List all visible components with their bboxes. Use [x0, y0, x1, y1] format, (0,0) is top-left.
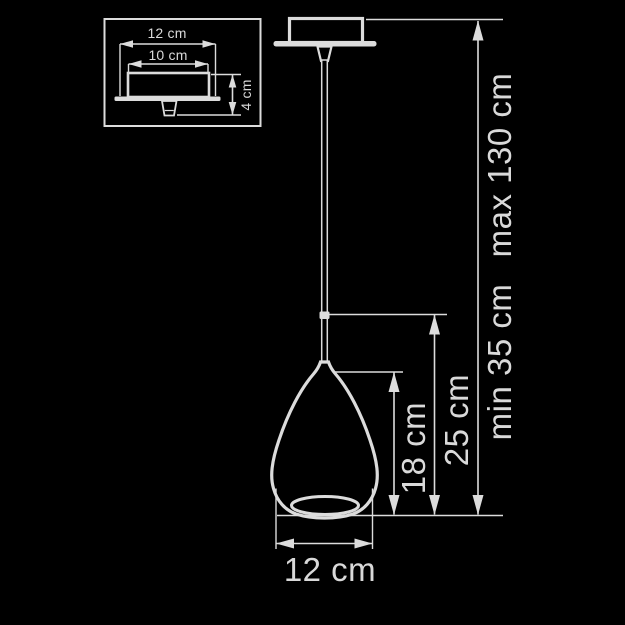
inset-canopy-body — [128, 73, 209, 97]
suspension-max-label: max 130 cm — [481, 73, 518, 258]
arrow-up-icon — [429, 315, 440, 335]
shade-height-dimension: 18 cm — [389, 372, 433, 515]
lamp-dimension-diagram: 12 cm 10 cm 4 cm — [0, 0, 625, 625]
suspension-range-dimension: max 130 cm min 35 cm — [473, 21, 519, 516]
arrow-up-icon — [473, 21, 484, 41]
arrow-left-icon — [276, 539, 294, 549]
pendant-lamp-drawing — [272, 19, 378, 519]
inset-inner-width-dimension: 10 cm — [129, 47, 209, 72]
detail-inset: 12 cm 10 cm 4 cm — [105, 19, 261, 126]
arrow-left-icon — [120, 40, 133, 48]
arrow-down-icon — [389, 495, 400, 515]
inset-stem — [162, 101, 177, 116]
shade-height-label: 18 cm — [395, 402, 432, 494]
inset-width-label: 12 cm — [147, 25, 186, 41]
suspension-min-label: min 35 cm — [481, 284, 518, 441]
shade-diameter-label: 12 cm — [284, 551, 376, 588]
shade-rod-dimension: 25 cm — [429, 315, 475, 516]
ceiling-canopy — [290, 19, 363, 43]
arrow-right-icon — [195, 60, 208, 68]
diagram-canvas: 12 cm 10 cm 4 cm — [0, 0, 625, 625]
lamp-shade — [272, 362, 378, 518]
arrow-up-icon — [229, 75, 237, 88]
cord-connector — [320, 312, 330, 320]
cord-grip — [318, 47, 332, 62]
arrow-down-icon — [473, 495, 484, 515]
shade-rod-height-label: 25 cm — [438, 374, 475, 466]
arrow-right-icon — [203, 40, 216, 48]
arrow-down-icon — [429, 495, 440, 515]
inset-inner-width-label: 10 cm — [148, 47, 187, 63]
arrow-down-icon — [229, 102, 237, 115]
arrow-up-icon — [389, 372, 400, 392]
arrow-right-icon — [355, 539, 373, 549]
arrow-left-icon — [129, 60, 142, 68]
inset-height-label: 4 cm — [238, 79, 254, 110]
